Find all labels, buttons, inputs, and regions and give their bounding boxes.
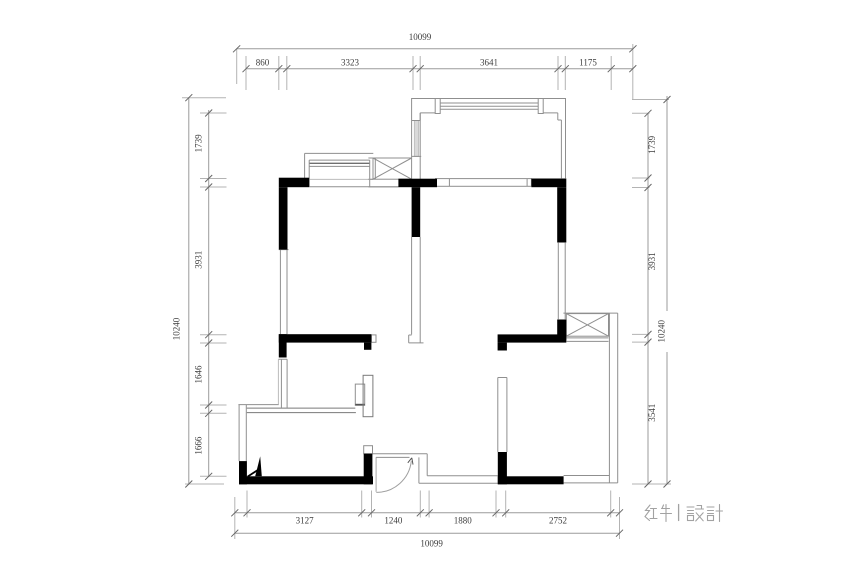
svg-text:2752: 2752: [549, 516, 567, 526]
svg-text:3641: 3641: [480, 58, 498, 68]
svg-text:10240: 10240: [657, 320, 667, 343]
svg-text:860: 860: [256, 58, 270, 68]
svg-text:1739: 1739: [647, 135, 657, 154]
svg-text:3931: 3931: [647, 252, 657, 270]
svg-text:1175: 1175: [579, 58, 597, 68]
svg-text:1739: 1739: [194, 134, 204, 153]
svg-text:10099: 10099: [409, 32, 432, 42]
svg-text:1880: 1880: [454, 516, 473, 526]
svg-text:3541: 3541: [647, 404, 657, 422]
svg-text:3931: 3931: [194, 251, 204, 269]
svg-text:3323: 3323: [341, 58, 360, 68]
svg-text:10240: 10240: [172, 317, 182, 340]
svg-text:1646: 1646: [194, 365, 204, 384]
svg-text:10099: 10099: [420, 539, 443, 549]
svg-text:1666: 1666: [194, 436, 204, 455]
svg-text:3127: 3127: [296, 516, 315, 526]
svg-text:1240: 1240: [384, 516, 403, 526]
